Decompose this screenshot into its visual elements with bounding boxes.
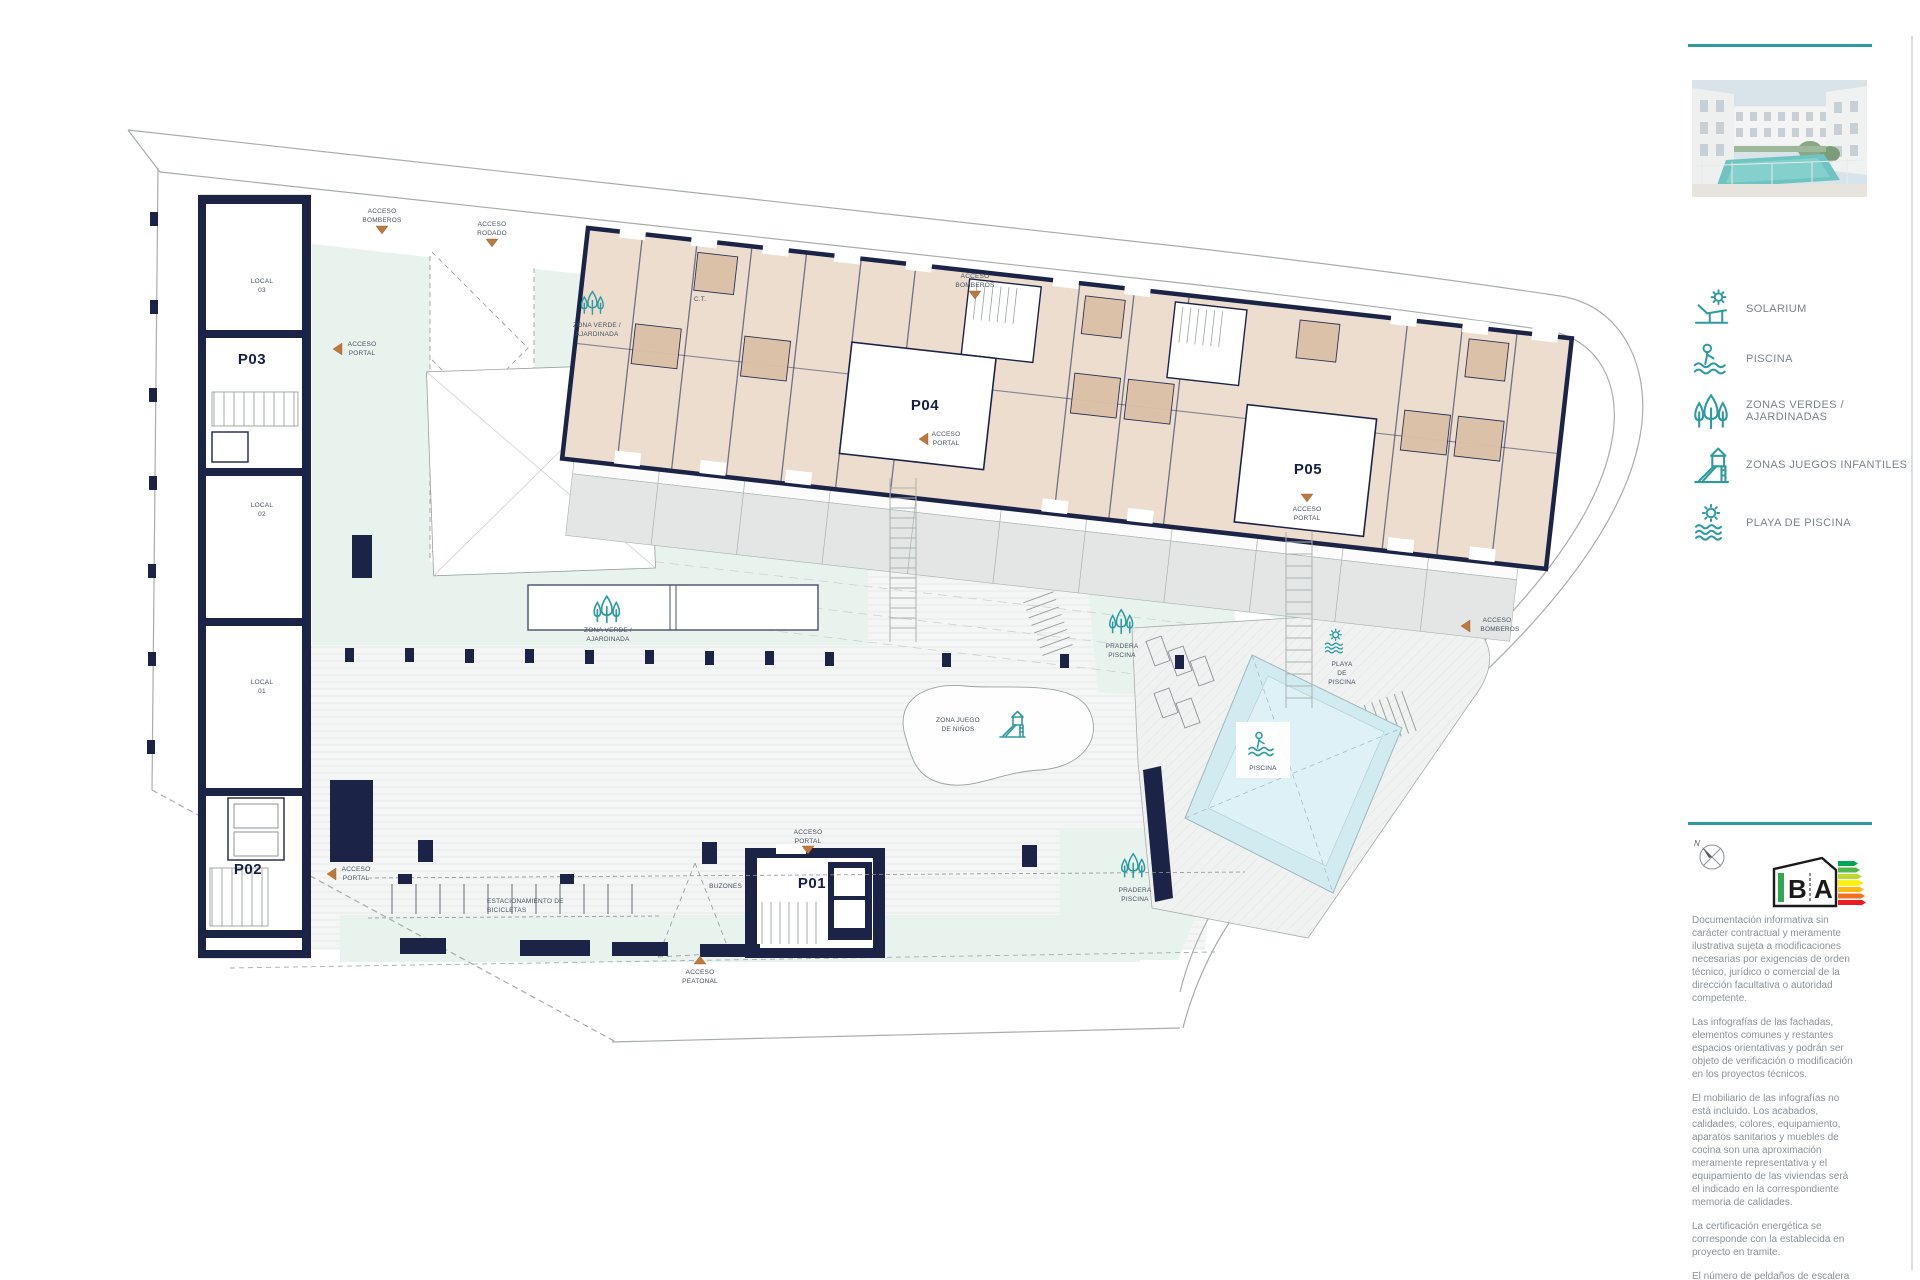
svg-text:BOMBEROS: BOMBEROS — [955, 282, 995, 289]
legend-item-piscina: PISCINA — [1690, 338, 1914, 380]
legend-label: ZONAS JUEGOS INFANTILES — [1746, 459, 1907, 471]
pradera-piscina-label: PRADERA — [1106, 643, 1139, 650]
legend-item-solarium: SOLARIUM — [1690, 288, 1914, 330]
ct-label: C.T. — [694, 296, 706, 303]
bike-parking-label: ESTACIONAMIENTO DE — [487, 898, 564, 905]
disclaimer-paragraph: El mobiliario de las infografías no está… — [1692, 1092, 1856, 1209]
accent-rule — [1688, 822, 1872, 825]
svg-text:PISCINA: PISCINA — [1108, 652, 1136, 659]
svg-text:PISCINA: PISCINA — [1121, 896, 1149, 903]
project-photo — [1692, 80, 1867, 197]
svg-text:PEATONAL: PEATONAL — [682, 978, 718, 985]
energy-letter-a: A — [1814, 874, 1833, 904]
site-plan: ACCESO BOMBEROS ACCESO RODADO ACCESO BOM… — [0, 0, 1690, 1280]
legend-label: SOLARIUM — [1746, 303, 1807, 315]
disclaimer-paragraph: El número de peldaños de escalera dibuja… — [1692, 1270, 1856, 1280]
local-02-label: LOCAL — [251, 502, 274, 509]
playa-piscina-label: PLAYA — [1332, 661, 1353, 668]
energy-certificate-logo: B A — [1770, 853, 1866, 916]
svg-text:BOMBEROS: BOMBEROS — [362, 217, 402, 224]
legend-label: PLAYA DE PISCINA — [1746, 517, 1851, 529]
svg-text:BICICLETAS: BICICLETAS — [487, 907, 527, 914]
pool-area — [1132, 608, 1490, 938]
legend-item-playa-piscina: PLAYA DE PISCINA — [1690, 502, 1914, 544]
svg-text:BOMBEROS: BOMBEROS — [1480, 626, 1520, 633]
acceso-rodado-label: ACCESO — [478, 221, 507, 228]
disclaimer-paragraph: Documentación informativa sin carácter c… — [1692, 914, 1856, 1005]
portal-p02-label: P02 — [234, 861, 262, 878]
acceso-portal-label: ACCESO — [932, 431, 961, 438]
sheet-edge-line — [1911, 36, 1913, 1270]
acceso-portal-label: ACCESO — [794, 829, 823, 836]
zona-juego-label: ZONA JUEGO — [936, 717, 980, 724]
north-compass: N — [1690, 836, 1730, 881]
svg-text:03: 03 — [258, 287, 266, 294]
legend-label: ZONAS VERDES / AJARDINADAS — [1746, 399, 1914, 423]
local-03-label: LOCAL — [251, 278, 274, 285]
portal-p05-label: P05 — [1294, 461, 1322, 478]
svg-text:PORTAL: PORTAL — [795, 838, 822, 845]
plan-sheet: ACCESO BOMBEROS ACCESO RODADO ACCESO BOM… — [0, 0, 1920, 1280]
svg-text:RODADO: RODADO — [477, 230, 507, 237]
acceso-portal-label: ACCESO — [1293, 506, 1322, 513]
svg-text:AJARDINADA: AJARDINADA — [575, 331, 619, 338]
svg-text:PORTAL: PORTAL — [343, 875, 370, 882]
legend-label: PISCINA — [1746, 353, 1793, 365]
acceso-bomberos-label: ACCESO — [368, 208, 397, 215]
local-01-label: LOCAL — [251, 679, 274, 686]
acceso-bomberos-label: ACCESO — [961, 273, 990, 280]
playa-piscina-icon — [1690, 502, 1732, 544]
acceso-portal-label: ACCESO — [342, 866, 371, 873]
piscina-icon — [1690, 338, 1732, 380]
svg-text:DE NIÑOS: DE NIÑOS — [941, 724, 974, 733]
disclaimer-paragraph: La certificación energética se correspon… — [1692, 1220, 1856, 1259]
svg-text:PISCINA: PISCINA — [1328, 679, 1356, 686]
zona-verde-label: ZONA VERDE / — [584, 627, 632, 634]
portal-p04-label: P04 — [911, 397, 939, 414]
disclaimer-paragraph: Las infografías de las fachadas, element… — [1692, 1016, 1856, 1081]
portal-p03-label: P03 — [238, 351, 266, 368]
portal-p01-label: P01 — [798, 875, 826, 892]
juegos-infantiles-icon — [1690, 444, 1732, 486]
acceso-bomberos-label: ACCESO — [1483, 617, 1512, 624]
svg-text:PORTAL: PORTAL — [1294, 515, 1321, 522]
svg-text:AJARDINADA: AJARDINADA — [586, 636, 630, 643]
energy-scale-bars — [1838, 861, 1866, 905]
svg-text:DE: DE — [1337, 670, 1347, 677]
svg-text:PORTAL: PORTAL — [349, 350, 376, 357]
energy-letter-b: B — [1788, 874, 1807, 904]
piscina-label: PISCINA — [1249, 765, 1277, 772]
buzones-label: BUZONES — [709, 883, 742, 890]
canopy — [528, 585, 818, 630]
svg-text:PORTAL: PORTAL — [933, 440, 960, 447]
svg-text:02: 02 — [258, 511, 266, 518]
legend-item-juegos-infantiles: ZONAS JUEGOS INFANTILES — [1690, 444, 1914, 486]
info-panel: SOLARIUM PISCINA ZONAS VERDES / AJARDINA… — [1688, 0, 1914, 1280]
svg-text:01: 01 — [258, 688, 266, 695]
acceso-portal-label: ACCESO — [348, 341, 377, 348]
disclaimer-text: Documentación informativa sin carácter c… — [1692, 914, 1856, 1280]
zonas-verdes-icon — [1690, 390, 1732, 432]
solarium-icon — [1690, 288, 1732, 330]
compass-n-label: N — [1694, 839, 1700, 848]
legend-item-zonas-verdes: ZONAS VERDES / AJARDINADAS — [1690, 390, 1914, 432]
acceso-peatonal-label: ACCESO — [686, 969, 715, 976]
zona-verde-label: ZONA VERDE / — [573, 322, 621, 329]
pradera-piscina-label: PRADERA — [1119, 887, 1152, 894]
accent-rule — [1688, 44, 1872, 47]
